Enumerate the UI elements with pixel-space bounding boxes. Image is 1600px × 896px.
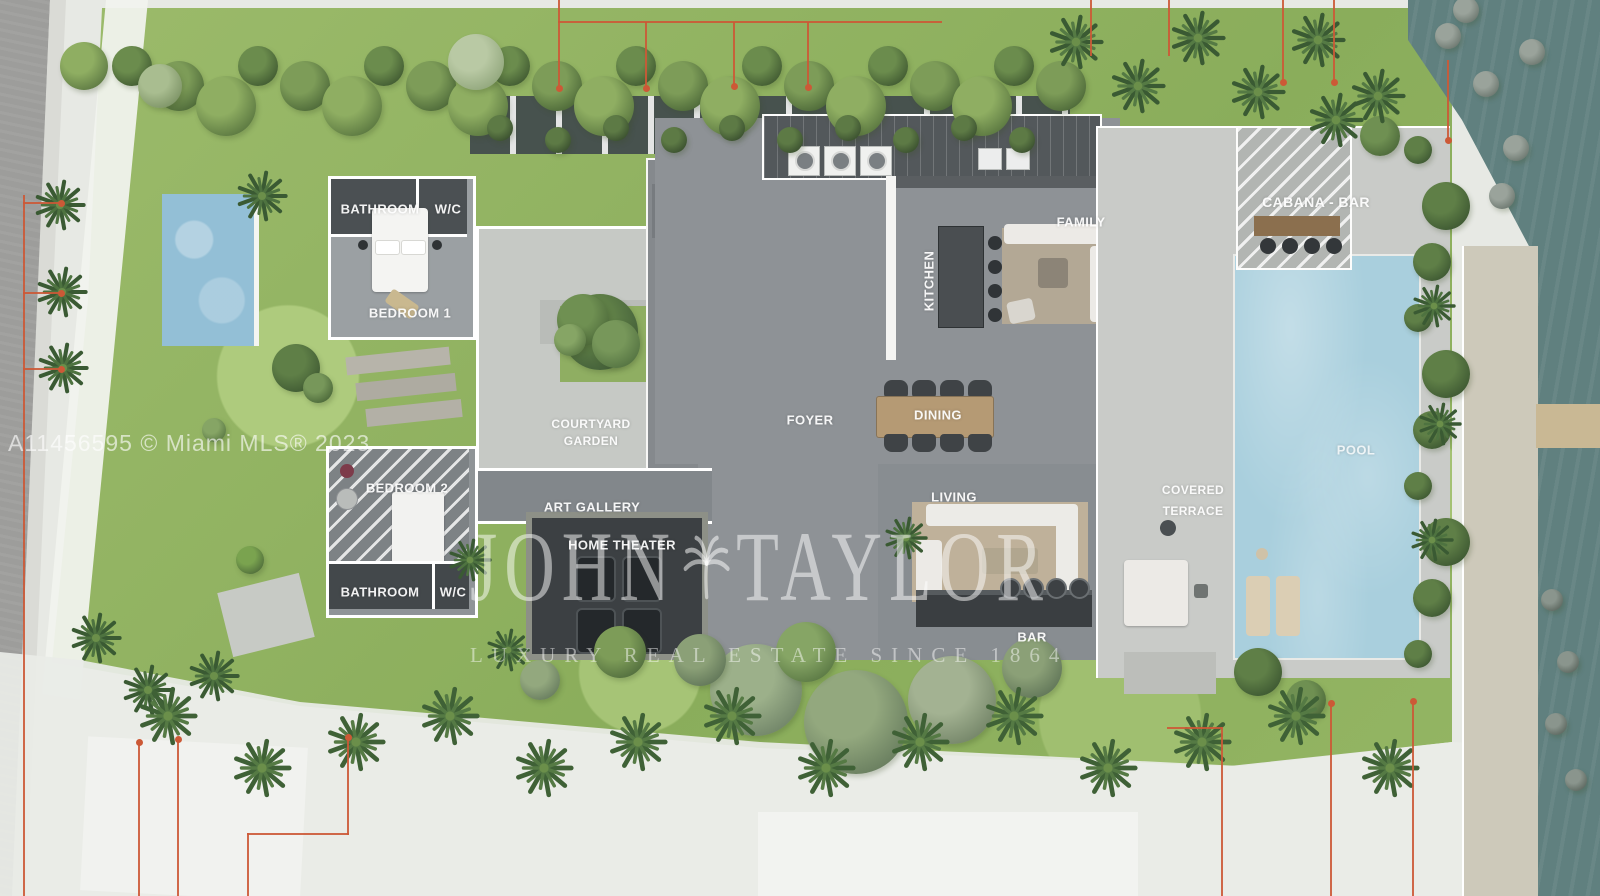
survey-line (1168, 0, 1170, 56)
label-bathroom-2: BATHROOM (341, 585, 420, 600)
label-living: LIVING (931, 490, 977, 505)
survey-line (645, 22, 647, 88)
site-plan-rendering: BATHROOM W/C BEDROOM 1 BEDROOM 2 BATHROO… (0, 0, 1600, 896)
survey-marker (731, 83, 738, 90)
survey-marker (1280, 79, 1287, 86)
label-cabana-bar: CABANA - BAR (1262, 194, 1370, 210)
survey-line (1333, 0, 1335, 80)
survey-line (807, 22, 809, 88)
survey-marker (643, 85, 650, 92)
label-courtyard-line2: GARDEN (564, 434, 618, 448)
survey-line (1282, 0, 1284, 80)
survey-line (138, 742, 140, 896)
survey-line (23, 195, 25, 896)
label-dining: DINING (914, 408, 962, 423)
survey-marker (1331, 79, 1338, 86)
label-courtyard-line1: COURTYARD (551, 417, 630, 431)
survey-line (1221, 727, 1223, 896)
label-bedroom-1: BEDROOM 1 (369, 306, 451, 321)
survey-line (23, 292, 63, 294)
survey-line (23, 368, 63, 370)
label-bedroom-2: BEDROOM 2 (366, 481, 448, 496)
label-wc-1: W/C (435, 202, 461, 217)
survey-marker (58, 200, 65, 207)
mls-watermark: A11456595 © Miami MLS® 2023 (8, 430, 370, 457)
brand-watermark: JOHN TAYLOR LUXURY REAL ESTATE SINCE 186… (470, 505, 1050, 668)
survey-line (23, 202, 63, 204)
label-kitchen: KITCHEN (922, 251, 937, 312)
brand-subtitle: LUXURY REAL ESTATE SINCE 1864 (470, 643, 1050, 668)
label-foyer: FOYER (787, 413, 834, 428)
palm-tree-logo-icon (683, 505, 730, 627)
survey-marker (58, 290, 65, 297)
survey-line (177, 739, 179, 896)
brand-word-john: JOHN (470, 519, 677, 618)
survey-line (558, 0, 560, 88)
survey-line (1412, 701, 1414, 896)
label-pool: POOL (1337, 443, 1375, 458)
survey-marker (805, 84, 812, 91)
survey-marker (556, 85, 563, 92)
label-wc-2: W/C (440, 585, 466, 600)
survey-marker (58, 366, 65, 373)
survey-line (247, 833, 349, 835)
survey-line (1167, 727, 1222, 729)
survey-line (1330, 703, 1332, 896)
survey-line (733, 22, 735, 88)
survey-line (347, 737, 349, 835)
label-covered-terrace-line2: TERRACE (1163, 504, 1224, 518)
survey-marker (1445, 137, 1452, 144)
brand-word-taylor: TAYLOR (736, 519, 1050, 618)
survey-line (1447, 60, 1449, 138)
survey-line (1090, 0, 1092, 56)
survey-line (558, 21, 942, 23)
brand-wordmark: JOHN TAYLOR (470, 505, 1050, 619)
label-covered-terrace-line1: COVERED (1162, 483, 1224, 497)
label-family: FAMILY (1057, 215, 1106, 230)
survey-line (247, 833, 249, 896)
label-bathroom-1: BATHROOM (341, 202, 420, 217)
